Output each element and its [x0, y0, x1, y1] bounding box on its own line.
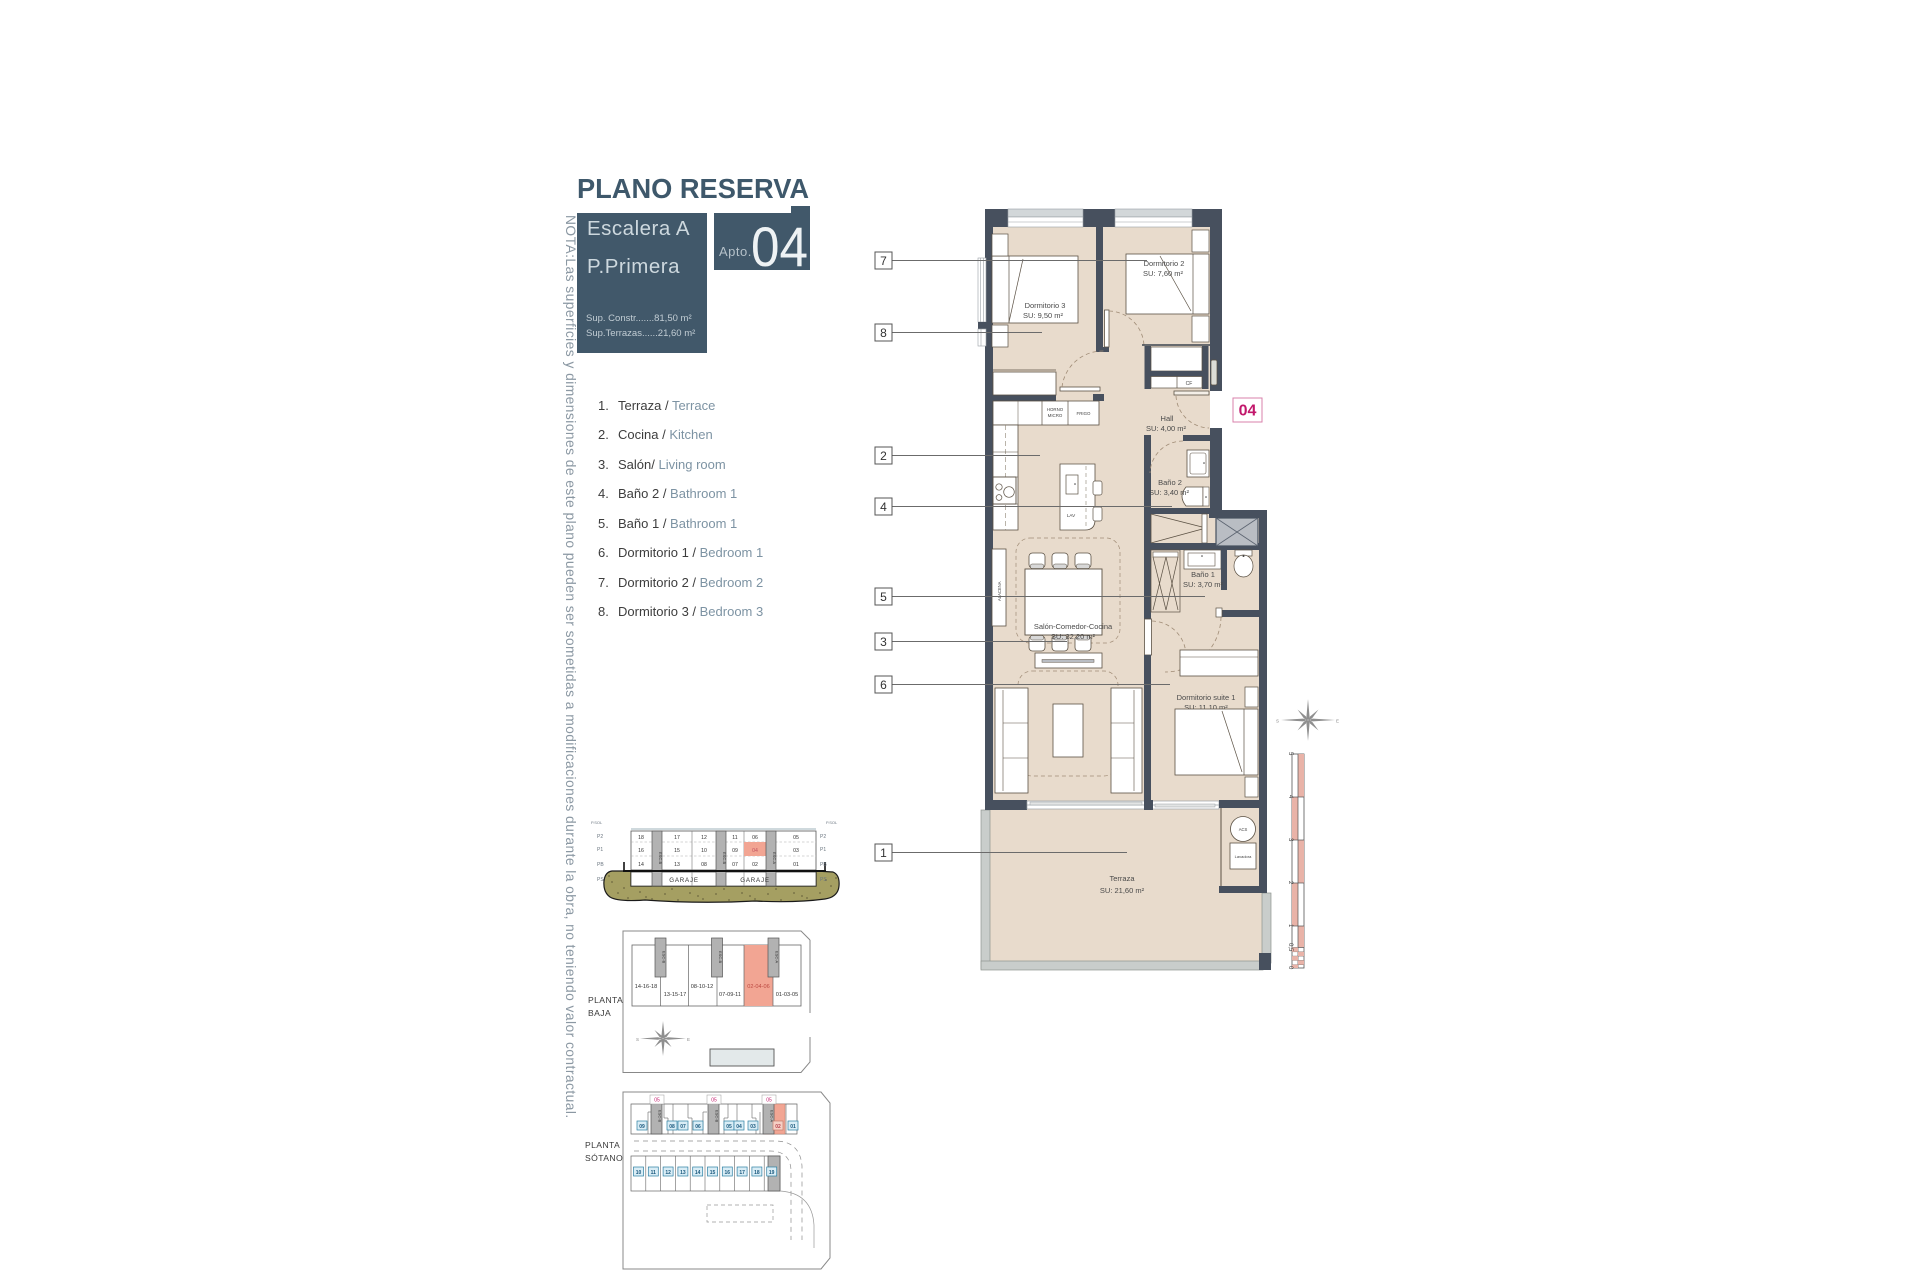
svg-text:PS: PS [820, 877, 827, 883]
svg-text:05: 05 [793, 835, 799, 841]
svg-text:17: 17 [739, 1170, 745, 1176]
svg-text:SU: 4,00 m²: SU: 4,00 m² [1146, 424, 1187, 433]
svg-text:18: 18 [754, 1170, 760, 1176]
svg-text:07-09-11: 07-09-11 [719, 992, 741, 998]
svg-text:ACS: ACS [1239, 827, 1248, 832]
svg-text:2: 2 [880, 449, 887, 463]
svg-text:08: 08 [669, 1124, 675, 1130]
svg-text:7.: 7. [598, 575, 609, 590]
svg-text:FRIGO: FRIGO [1077, 411, 1091, 416]
svg-text:ESC-A: ESC-A [772, 852, 777, 865]
svg-text:Lavadora: Lavadora [1235, 854, 1252, 859]
svg-text:SÓTANO: SÓTANO [585, 1153, 623, 1163]
svg-text:08-10-12: 08-10-12 [691, 984, 713, 990]
svg-text:Dormitorio 2 / Bedroom 2: Dormitorio 2 / Bedroom 2 [618, 575, 763, 590]
svg-text:02-04-06: 02-04-06 [747, 984, 769, 990]
svg-text:06: 06 [695, 1124, 701, 1130]
svg-text:Baño 2 / Bathroom 1: Baño 2 / Bathroom 1 [618, 486, 737, 501]
svg-text:14: 14 [695, 1170, 701, 1176]
svg-text:03: 03 [750, 1124, 756, 1130]
svg-text:18: 18 [638, 835, 644, 841]
svg-text:Hall: Hall [1161, 414, 1174, 423]
svg-text:P.Primera: P.Primera [587, 255, 680, 278]
svg-text:Dormitorio suite 1: Dormitorio suite 1 [1177, 693, 1236, 702]
svg-text:04: 04 [752, 848, 758, 854]
svg-text:ESC-B: ESC-B [718, 951, 723, 964]
svg-text:E: E [1336, 719, 1339, 724]
svg-text:12: 12 [701, 835, 707, 841]
svg-text:PLANTA: PLANTA [585, 1140, 620, 1150]
svg-text:CF: CF [1186, 381, 1193, 387]
svg-text:Salón-Comedor-Cocina: Salón-Comedor-Cocina [1034, 622, 1113, 631]
svg-text:07: 07 [732, 862, 738, 868]
svg-text:Apto.: Apto. [719, 244, 752, 259]
svg-text:ESC-B: ESC-B [658, 1110, 663, 1123]
svg-text:NOTA:Las superficies y dimensi: NOTA:Las superficies y dimensiones de es… [563, 215, 578, 1119]
svg-text:ALACENA: ALACENA [997, 581, 1002, 601]
svg-text:19: 19 [769, 1170, 775, 1176]
svg-text:SU: 21,60 m²: SU: 21,60 m² [1100, 886, 1145, 895]
svg-text:4: 4 [880, 500, 887, 514]
svg-text:13: 13 [680, 1170, 686, 1176]
svg-text:LAV: LAV [1067, 513, 1076, 518]
svg-text:03: 03 [793, 848, 799, 854]
svg-text:11: 11 [732, 835, 737, 841]
svg-text:17: 17 [674, 835, 680, 841]
svg-text:PLANTA: PLANTA [588, 995, 623, 1005]
svg-text:09: 09 [732, 848, 738, 854]
svg-text:01: 01 [793, 862, 799, 868]
svg-text:S: S [636, 1037, 639, 1042]
svg-text:Cocina / Kitchen: Cocina / Kitchen [618, 427, 713, 442]
svg-text:05: 05 [654, 1098, 660, 1104]
svg-text:13: 13 [674, 862, 680, 868]
svg-text:PLANO RESERVA: PLANO RESERVA [577, 173, 809, 204]
svg-text:SU: 32,20 m²: SU: 32,20 m² [1051, 632, 1096, 641]
svg-text:S: S [1276, 719, 1279, 724]
svg-text:ESC-B: ESC-B [662, 951, 667, 964]
svg-text:SU: 9,50 m²: SU: 9,50 m² [1023, 311, 1064, 320]
svg-text:13-15-17: 13-15-17 [664, 992, 686, 998]
svg-text:HORNO: HORNO [1047, 407, 1064, 412]
svg-text:07: 07 [680, 1124, 686, 1130]
svg-text:MICRO: MICRO [1048, 413, 1063, 418]
svg-text:ESC-B: ESC-B [658, 852, 663, 865]
svg-text:Dormitorio 3 / Bedroom 3: Dormitorio 3 / Bedroom 3 [618, 604, 763, 619]
svg-text:7: 7 [880, 254, 887, 268]
svg-text:16: 16 [725, 1170, 731, 1176]
svg-text:12: 12 [665, 1170, 671, 1176]
svg-text:ESC-A: ESC-A [775, 951, 780, 964]
svg-text:06: 06 [752, 835, 758, 841]
svg-text:Baño 2: Baño 2 [1158, 478, 1182, 487]
svg-text:01-03-05: 01-03-05 [776, 992, 798, 998]
svg-text:0,5: 0,5 [1287, 943, 1293, 952]
svg-text:8.: 8. [598, 604, 609, 619]
svg-text:Baño 1 / Bathroom 1: Baño 1 / Bathroom 1 [618, 516, 737, 531]
svg-text:04: 04 [736, 1124, 742, 1130]
svg-text:SU: 3,40 m²: SU: 3,40 m² [1149, 488, 1190, 497]
svg-text:3.: 3. [598, 457, 609, 472]
svg-text:P2: P2 [597, 834, 603, 840]
svg-text:E: E [687, 1037, 690, 1042]
svg-text:P.SOL: P.SOL [826, 820, 838, 825]
svg-text:08: 08 [701, 862, 707, 868]
svg-text:P1: P1 [820, 847, 826, 853]
svg-text:01: 01 [790, 1124, 796, 1130]
svg-text:BAJA: BAJA [588, 1008, 611, 1018]
svg-text:Dormitorio 2: Dormitorio 2 [1144, 259, 1185, 268]
svg-text:4.: 4. [598, 486, 609, 501]
svg-text:SU: 7,60 m²: SU: 7,60 m² [1143, 269, 1184, 278]
svg-text:05: 05 [726, 1124, 732, 1130]
svg-text:05: 05 [711, 1098, 717, 1104]
svg-text:ESC-B: ESC-B [715, 1110, 720, 1123]
svg-text:15: 15 [710, 1170, 716, 1176]
svg-text:02: 02 [752, 862, 758, 868]
svg-text:11: 11 [651, 1170, 657, 1176]
svg-text:GARAJE: GARAJE [669, 877, 699, 884]
svg-text:Dormitorio 3: Dormitorio 3 [1025, 301, 1066, 310]
svg-text:04: 04 [751, 215, 808, 278]
svg-text:5: 5 [880, 590, 887, 604]
svg-text:1.: 1. [598, 398, 609, 413]
svg-text:05: 05 [766, 1098, 772, 1104]
svg-text:Sup. Constr.......81,50 m²: Sup. Constr.......81,50 m² [586, 313, 692, 324]
svg-text:SU: 3,70 m²: SU: 3,70 m² [1183, 580, 1224, 589]
svg-text:04: 04 [1239, 403, 1257, 420]
svg-text:PB: PB [597, 862, 604, 868]
svg-text:14: 14 [638, 862, 644, 868]
svg-text:Sup.Terrazas......21,60 m²: Sup.Terrazas......21,60 m² [586, 328, 695, 339]
svg-text:PB: PB [820, 862, 827, 868]
svg-text:Salón/ Living room: Salón/ Living room [618, 457, 726, 472]
svg-text:Terraza: Terraza [1109, 874, 1135, 883]
svg-text:16: 16 [638, 848, 644, 854]
svg-text:Baño 1: Baño 1 [1191, 570, 1215, 579]
svg-text:09: 09 [639, 1124, 645, 1130]
svg-text:3: 3 [880, 635, 887, 649]
svg-text:15: 15 [674, 848, 680, 854]
svg-text:PS: PS [597, 877, 604, 883]
svg-text:ESC-B: ESC-B [722, 852, 727, 865]
svg-text:14-16-18: 14-16-18 [635, 984, 657, 990]
svg-text:GARAJE: GARAJE [740, 877, 770, 884]
svg-text:2.: 2. [598, 427, 609, 442]
svg-text:Escalera A: Escalera A [587, 217, 690, 240]
svg-text:10: 10 [636, 1170, 642, 1176]
svg-text:Dormitorio 1 / Bedroom 1: Dormitorio 1 / Bedroom 1 [618, 545, 763, 560]
svg-text:02: 02 [775, 1124, 781, 1130]
svg-text:Terraza / Terrace: Terraza / Terrace [618, 398, 715, 413]
svg-text:P1: P1 [597, 847, 603, 853]
svg-text:P.SOL: P.SOL [591, 820, 603, 825]
svg-text:1: 1 [880, 846, 887, 860]
svg-text:8: 8 [880, 326, 887, 340]
svg-text:6: 6 [880, 678, 887, 692]
svg-text:5.: 5. [598, 516, 609, 531]
svg-text:10: 10 [701, 848, 707, 854]
svg-text:P2: P2 [820, 834, 826, 840]
svg-text:6.: 6. [598, 545, 609, 560]
